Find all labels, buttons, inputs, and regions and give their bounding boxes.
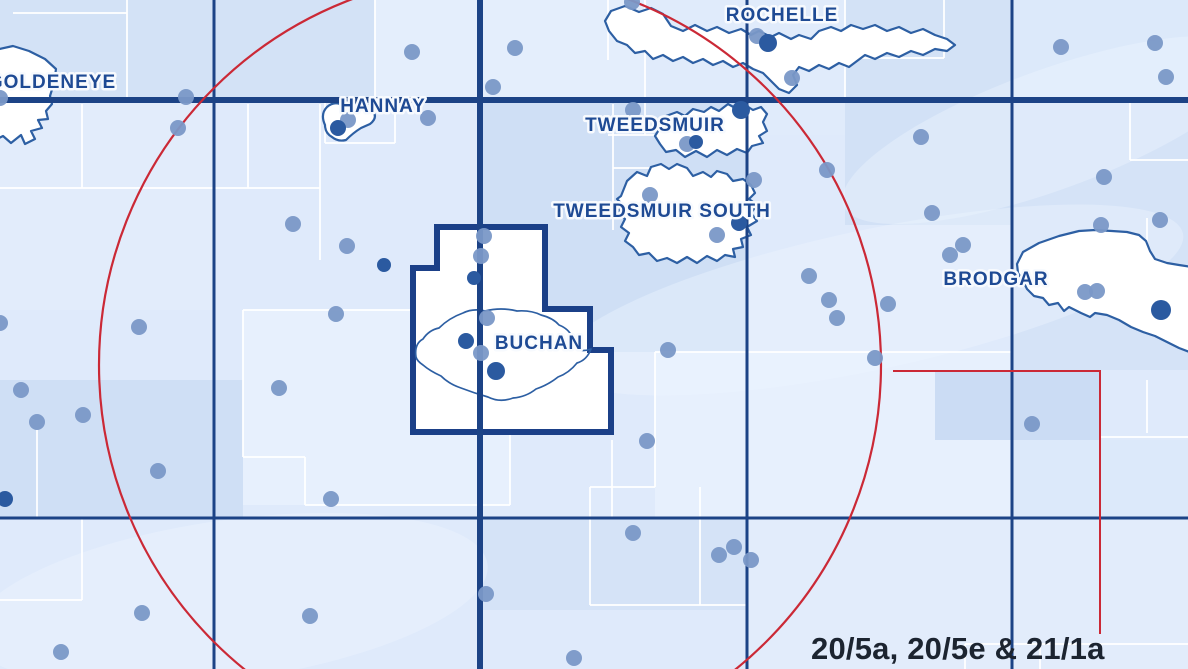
well-marker-dark — [377, 258, 391, 272]
well-marker-light — [13, 382, 29, 398]
well-marker-light — [942, 247, 958, 263]
field-label-tweedsmuir-south: TWEEDSMUIR SOUTH — [553, 201, 771, 222]
well-marker-light — [1053, 39, 1069, 55]
well-marker-light — [639, 433, 655, 449]
licence-annotation: 20/5a, 20/5e & 21/1a — [811, 633, 1105, 664]
well-marker-light — [150, 463, 166, 479]
well-marker-light — [1093, 217, 1109, 233]
well-marker-light — [867, 350, 883, 366]
field-label-brodgar: BRODGAR — [943, 269, 1048, 290]
well-marker-dark — [487, 362, 505, 380]
well-marker-light — [328, 306, 344, 322]
well-marker-light — [913, 129, 929, 145]
well-marker-dark — [759, 34, 777, 52]
well-marker-light — [726, 539, 742, 555]
well-marker-light — [473, 345, 489, 361]
well-marker-dark — [467, 271, 481, 285]
offshore-licence-map: GOLDENEYEHANNAYTWEEDSMUIRTWEEDSMUIR SOUT… — [0, 0, 1188, 669]
well-marker-light — [473, 248, 489, 264]
well-marker-light — [476, 228, 492, 244]
well-marker-dark — [689, 135, 703, 149]
block-tint — [480, 518, 747, 610]
field-label-hannay: HANNAY — [340, 96, 426, 117]
well-marker-light — [746, 172, 762, 188]
well-marker-dark — [458, 333, 474, 349]
well-marker-light — [53, 644, 69, 660]
field-label-tweedsmuir: TWEEDSMUIR — [585, 115, 725, 136]
well-marker-light — [170, 120, 186, 136]
well-marker-light — [566, 650, 582, 666]
well-marker-light — [829, 310, 845, 326]
well-marker-light — [743, 552, 759, 568]
well-marker-light — [1096, 169, 1112, 185]
well-marker-light — [75, 407, 91, 423]
well-marker-light — [339, 238, 355, 254]
well-marker-light — [285, 216, 301, 232]
well-marker-light — [625, 525, 641, 541]
well-marker-light — [819, 162, 835, 178]
well-marker-light — [880, 296, 896, 312]
well-marker-dark — [330, 120, 346, 136]
well-marker-light — [784, 70, 800, 86]
well-marker-light — [478, 586, 494, 602]
well-marker-light — [507, 40, 523, 56]
well-marker-light — [178, 89, 194, 105]
well-marker-light — [1158, 69, 1174, 85]
well-marker-light — [821, 292, 837, 308]
well-marker-light — [131, 319, 147, 335]
well-marker-light — [801, 268, 817, 284]
field-label-rochelle: ROCHELLE — [726, 5, 839, 26]
well-marker-light — [660, 342, 676, 358]
well-marker-light — [323, 491, 339, 507]
well-marker-light — [711, 547, 727, 563]
well-marker-light — [1089, 283, 1105, 299]
block-tint — [935, 371, 1012, 440]
well-marker-light — [29, 414, 45, 430]
field-label-goldeneye: GOLDENEYE — [0, 72, 116, 93]
well-marker-light — [1024, 416, 1040, 432]
well-marker-dark — [1151, 300, 1171, 320]
well-marker-light — [479, 310, 495, 326]
well-marker-light — [709, 227, 725, 243]
well-marker-light — [1152, 212, 1168, 228]
well-marker-light — [955, 237, 971, 253]
field-label-buchan: BUCHAN — [495, 333, 583, 354]
well-marker-light — [271, 380, 287, 396]
well-marker-light — [134, 605, 150, 621]
well-marker-light — [302, 608, 318, 624]
well-marker-light — [404, 44, 420, 60]
map-canvas: GOLDENEYEHANNAYTWEEDSMUIRTWEEDSMUIR SOUT… — [0, 0, 1188, 669]
well-marker-light — [485, 79, 501, 95]
well-marker-dark — [732, 101, 750, 119]
well-marker-light — [924, 205, 940, 221]
well-marker-light — [1147, 35, 1163, 51]
